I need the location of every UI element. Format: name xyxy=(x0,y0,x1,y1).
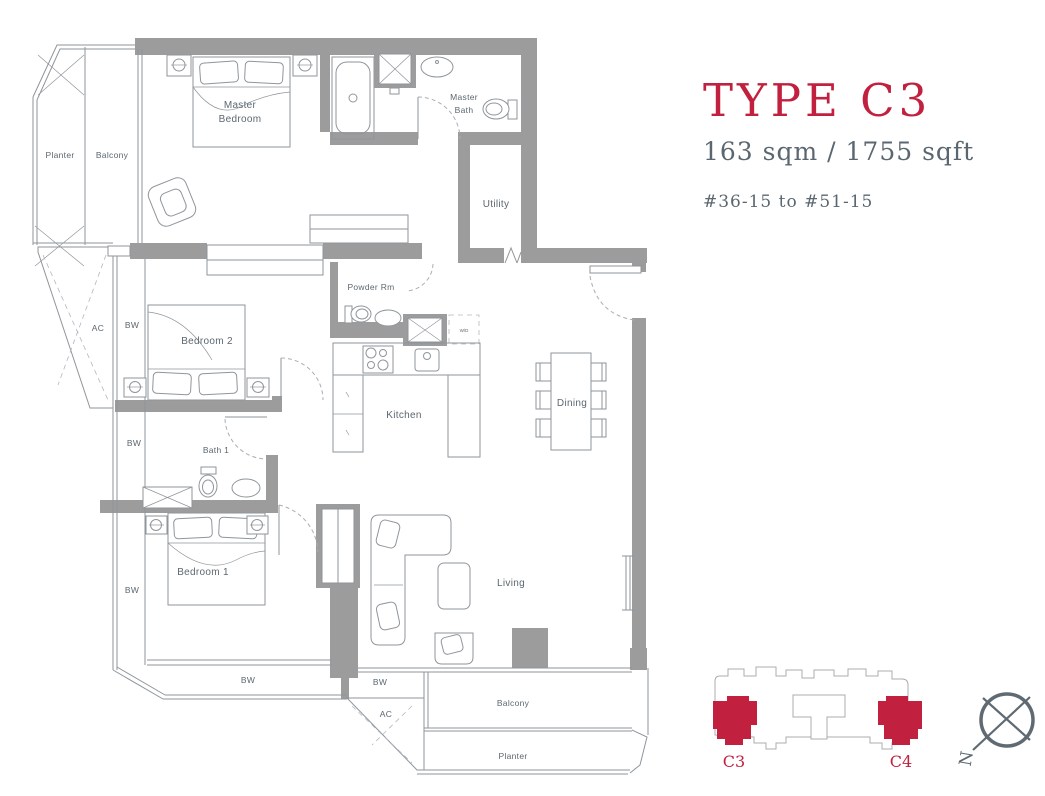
label-balcony-top: Balcony xyxy=(96,150,129,160)
title-block: TYPE C3 163 sqm / 1755 sqft #36-15 to #5… xyxy=(703,78,974,212)
label-balcony-bottom: Balcony xyxy=(497,698,530,708)
label-ac-left: AC xyxy=(92,323,104,333)
keyplan-label-c4: C4 xyxy=(890,752,912,771)
label-master-bedroom-1: Master xyxy=(224,100,257,111)
label-bw-1: BW xyxy=(125,320,139,330)
label-planter-top: Planter xyxy=(45,150,74,160)
label-planter-bottom: Planter xyxy=(498,751,527,761)
label-bw-2: BW xyxy=(127,438,141,448)
room-labels: Planter Balcony Master Bedroom Master Ba… xyxy=(45,92,587,761)
label-bath1: Bath 1 xyxy=(203,445,229,455)
label-kitchen: Kitchen xyxy=(386,410,421,421)
label-living: Living xyxy=(497,578,525,589)
label-master-bedroom-2: Bedroom xyxy=(219,114,262,125)
keyplan-label-c3: C3 xyxy=(723,752,745,771)
label-powder-room: Powder Rm xyxy=(347,282,394,292)
label-bw-5: BW xyxy=(373,677,387,687)
keyplan-unit-c4 xyxy=(878,696,922,745)
unit-area: 163 sqm / 1755 sqft xyxy=(703,137,974,166)
label-washer-dryer: W/D xyxy=(460,328,469,333)
label-master-bath-2: Bath xyxy=(455,105,474,115)
compass-north-label: N xyxy=(956,750,978,768)
floor-plan-drawing: Planter Balcony Master Bedroom Master Ba… xyxy=(10,10,670,790)
unit-type-title: TYPE C3 xyxy=(703,78,974,123)
label-bedroom2: Bedroom 2 xyxy=(181,336,233,347)
label-ac-bottom: AC xyxy=(380,709,392,719)
label-bw-4: BW xyxy=(241,675,255,685)
label-bedroom1: Bedroom 1 xyxy=(177,567,229,578)
label-bw-3: BW xyxy=(125,585,139,595)
north-compass: N xyxy=(950,668,1045,778)
key-plan: C3 C4 xyxy=(695,643,940,783)
label-utility: Utility xyxy=(483,199,510,210)
unit-range: #36-15 to #51-15 xyxy=(703,192,974,212)
keyplan-unit-c3 xyxy=(713,696,757,745)
label-dining: Dining xyxy=(557,398,587,409)
label-master-bath-1: Master xyxy=(450,92,478,102)
floor-plan-page: Planter Balcony Master Bedroom Master Ba… xyxy=(0,0,1045,796)
